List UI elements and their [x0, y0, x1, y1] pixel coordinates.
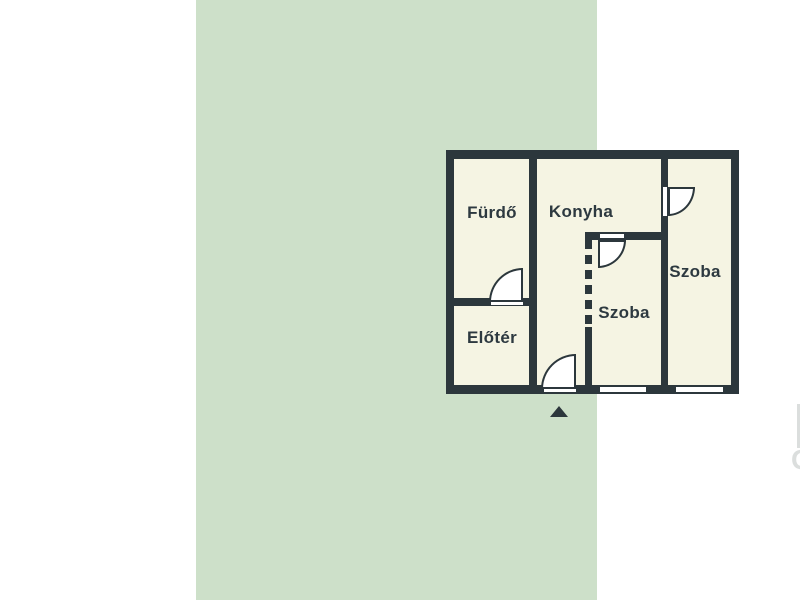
room-label-right-room: Szoba — [669, 262, 721, 282]
watermark-letter: G — [791, 446, 800, 474]
floorplan: G Fürdő Konyha Előtér Szoba Szoba — [446, 150, 739, 394]
dashed-partition-wall — [585, 240, 592, 327]
entrance-marker-icon — [550, 406, 568, 417]
room-label-middle-room: Szoba — [598, 303, 650, 323]
room-label-kitchen: Konyha — [549, 202, 613, 222]
middle-room-window — [599, 386, 647, 393]
room-label-hallway: Előtér — [467, 328, 517, 348]
right-room-window — [675, 386, 724, 393]
watermark-logo: G — [791, 402, 800, 482]
middle-room-door-threshold — [599, 233, 625, 239]
page: G Fürdő Konyha Előtér Szoba Szoba — [0, 0, 800, 600]
listing-image-background: G Fürdő Konyha Előtér Szoba Szoba — [196, 0, 597, 600]
room-label-bathroom: Fürdő — [467, 203, 517, 223]
